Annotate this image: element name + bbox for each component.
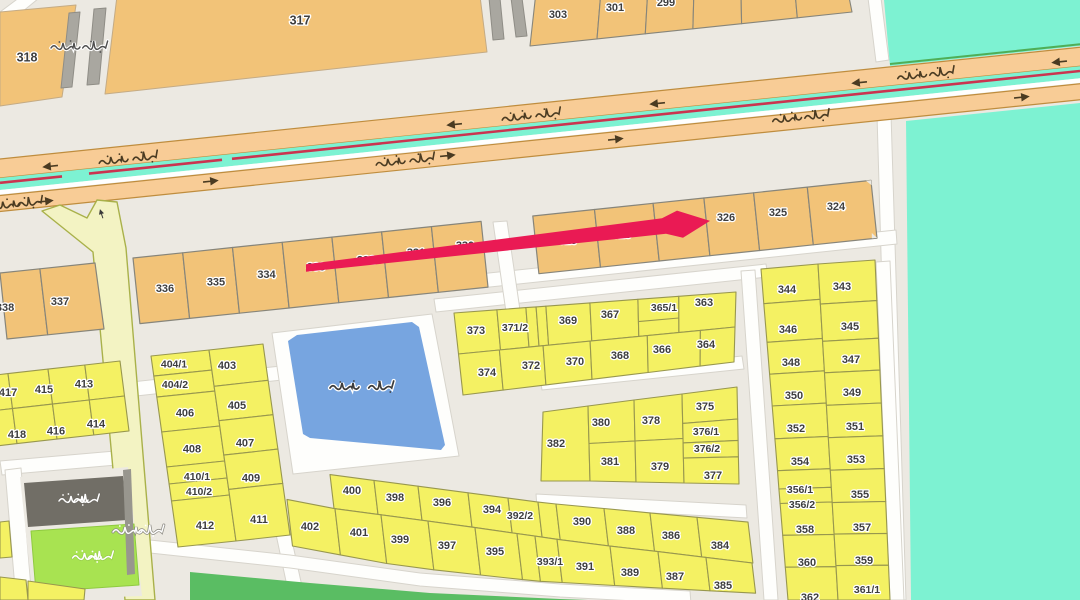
svg-text:362: 362: [801, 592, 819, 600]
svg-text:345: 345: [841, 321, 859, 333]
svg-text:377: 377: [704, 470, 722, 482]
svg-text:398: 398: [386, 492, 404, 504]
svg-text:318: 318: [17, 51, 38, 65]
svg-text:399: 399: [391, 534, 409, 546]
svg-text:385: 385: [714, 580, 732, 592]
svg-text:324: 324: [827, 201, 846, 213]
svg-text:344: 344: [778, 284, 797, 296]
svg-text:389: 389: [621, 567, 639, 579]
svg-text:407: 407: [236, 438, 254, 450]
svg-text:343: 343: [833, 281, 851, 293]
svg-text:406: 406: [176, 408, 194, 420]
svg-text:395: 395: [486, 546, 504, 558]
svg-text:410/2: 410/2: [186, 486, 212, 498]
svg-text:348: 348: [782, 357, 800, 369]
svg-text:368: 368: [611, 350, 629, 362]
svg-text:357: 357: [853, 522, 871, 534]
svg-text:390: 390: [573, 516, 591, 528]
svg-text:386: 386: [662, 530, 680, 542]
svg-text:369: 369: [559, 315, 577, 327]
svg-text:299: 299: [657, 0, 675, 9]
svg-text:414: 414: [87, 419, 106, 431]
svg-text:334: 334: [257, 269, 276, 281]
svg-text:416: 416: [47, 426, 65, 438]
svg-text:371/2: 371/2: [502, 322, 528, 334]
svg-text:393/1: 393/1: [537, 556, 563, 568]
svg-text:367: 367: [601, 309, 619, 321]
svg-text:376/1: 376/1: [693, 426, 719, 438]
svg-text:301: 301: [606, 2, 624, 14]
svg-text:382: 382: [547, 438, 565, 450]
svg-text:408: 408: [183, 444, 201, 456]
svg-text:378: 378: [642, 415, 660, 427]
svg-text:365/1: 365/1: [651, 302, 677, 314]
svg-text:379: 379: [651, 461, 669, 473]
svg-text:346: 346: [779, 324, 797, 336]
svg-text:394: 394: [483, 504, 502, 516]
svg-text:388: 388: [617, 525, 635, 537]
svg-text:356/1: 356/1: [787, 484, 813, 496]
svg-text:359: 359: [855, 555, 873, 567]
svg-text:413: 413: [75, 379, 93, 391]
svg-text:361/1: 361/1: [854, 584, 880, 596]
svg-text:325: 325: [769, 207, 787, 219]
svg-text:349: 349: [843, 387, 861, 399]
svg-text:374: 374: [478, 367, 497, 379]
svg-text:366: 366: [653, 344, 671, 356]
svg-text:373: 373: [467, 325, 485, 337]
svg-text:337: 337: [51, 296, 69, 308]
svg-text:326: 326: [717, 212, 735, 224]
svg-text:409: 409: [242, 473, 260, 485]
svg-text:401: 401: [350, 527, 368, 539]
svg-text:351: 351: [846, 421, 864, 433]
svg-text:405: 405: [228, 400, 246, 412]
svg-text:372: 372: [522, 360, 540, 372]
svg-text:400: 400: [343, 485, 361, 497]
svg-text:375: 375: [696, 401, 714, 413]
svg-text:352: 352: [787, 423, 805, 435]
svg-text:403: 403: [218, 360, 236, 372]
svg-text:356/2: 356/2: [789, 499, 815, 511]
svg-text:417: 417: [0, 387, 17, 399]
svg-text:355: 355: [851, 489, 869, 501]
svg-text:335: 335: [207, 277, 225, 289]
svg-text:338: 338: [0, 302, 14, 314]
svg-text:418: 418: [8, 429, 26, 441]
svg-text:391: 391: [576, 561, 594, 573]
svg-text:317: 317: [290, 14, 311, 28]
svg-text:354: 354: [791, 456, 810, 468]
svg-text:392/2: 392/2: [507, 510, 533, 522]
svg-text:404/2: 404/2: [162, 379, 188, 391]
svg-text:412: 412: [196, 520, 214, 532]
svg-text:415: 415: [35, 384, 53, 396]
svg-text:411: 411: [250, 514, 268, 526]
svg-text:360: 360: [798, 557, 816, 569]
svg-text:384: 384: [711, 540, 730, 552]
svg-text:347: 347: [842, 354, 860, 366]
svg-text:396: 396: [433, 497, 451, 509]
svg-text:404/1: 404/1: [161, 358, 187, 370]
svg-text:402: 402: [301, 521, 319, 533]
svg-text:370: 370: [566, 356, 584, 368]
svg-text:381: 381: [601, 456, 619, 468]
svg-text:336: 336: [156, 283, 174, 295]
svg-text:303: 303: [549, 9, 567, 21]
svg-text:397: 397: [438, 540, 456, 552]
svg-text:363: 363: [695, 297, 713, 309]
svg-text:358: 358: [796, 524, 814, 536]
svg-text:380: 380: [592, 417, 610, 429]
svg-text:410/1: 410/1: [184, 471, 210, 483]
svg-text:350: 350: [785, 390, 803, 402]
svg-text:353: 353: [847, 454, 865, 466]
svg-text:376/2: 376/2: [694, 443, 720, 455]
svg-text:364: 364: [697, 339, 716, 351]
svg-text:387: 387: [666, 571, 684, 583]
